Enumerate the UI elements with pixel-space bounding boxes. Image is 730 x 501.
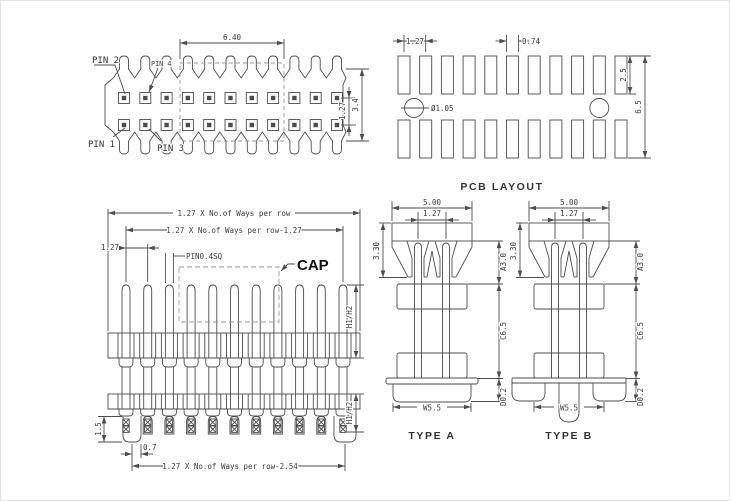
dim-arrow (529, 206, 536, 211)
pad-center (250, 96, 254, 100)
dim-arrow (518, 271, 523, 278)
type-a-view (379, 201, 503, 412)
pad-center (122, 96, 126, 100)
dim-body-width-label: 3.4 (351, 98, 360, 112)
cap-slope (529, 247, 545, 277)
standoff-foot (162, 409, 176, 416)
dim-arrow (126, 228, 133, 233)
dim-arrow (446, 218, 453, 223)
pcb-pad (593, 56, 605, 94)
cap-body (392, 223, 472, 241)
standoff-foot (184, 358, 198, 367)
cap-outline-dashed (180, 63, 284, 141)
front-dim-bottom-label: 1.27 X No.of Ways per row-2.54 (162, 462, 298, 471)
drawing-canvas: PIN 2 PIN 1 PIN 3 PIN 4 6.40 1.27 3.4 1.… (1, 1, 730, 501)
pin-upper (252, 285, 260, 333)
cap-funnel (407, 241, 412, 258)
pcb-pad (572, 120, 584, 158)
pcb-pad (528, 56, 540, 94)
dim-arrow (634, 284, 639, 291)
dim-arrow (277, 41, 284, 46)
cap-body (529, 223, 609, 241)
cap-slope (593, 247, 609, 277)
dim-arrow (338, 464, 345, 469)
pad-center (228, 123, 232, 127)
dim-row-pitch-label: 1.27 (338, 102, 347, 120)
standoff-foot (271, 409, 285, 416)
pin1-label: PIN 1 (88, 140, 115, 150)
base-wing (593, 383, 626, 401)
standoff-foot (119, 409, 133, 416)
dim-arrow (643, 56, 648, 63)
dim-arrow (353, 211, 360, 216)
pad-center (250, 123, 254, 127)
front-dim-pitch-label: 1.27 (101, 243, 119, 252)
dim-arrow (497, 284, 502, 291)
pad-center (143, 123, 147, 127)
dim-arrow (108, 211, 115, 216)
front-dim-offset-label: 0.7 (143, 443, 157, 452)
top-view (94, 39, 369, 154)
typeb-dim-a-label: A3.0 (636, 252, 645, 271)
front-dim-h-lower-label: H1/H2 (345, 402, 354, 425)
typeb-dim-d-label: D0.2 (636, 388, 645, 406)
cap-funnel (561, 241, 566, 258)
dim-arrow (497, 241, 502, 248)
pcb-pad (441, 56, 453, 94)
mount-hole (590, 99, 609, 118)
pcb-dim-pad-height-label: 2.5 (619, 68, 628, 82)
dim-arrow (465, 206, 472, 211)
base-boat (393, 384, 471, 402)
typea-dim-width-label: 5.00 (423, 198, 442, 207)
pin-upper (274, 285, 282, 333)
pad-center (186, 123, 190, 127)
pcb-pad (441, 120, 453, 158)
pin-upper (317, 285, 325, 333)
insulator-upper (108, 333, 360, 358)
pin-upper (165, 285, 173, 333)
front-dim-pin-label: PIN0.4SQ (186, 252, 223, 261)
pad-center (314, 123, 318, 127)
standoff-foot (206, 358, 220, 367)
typeb-dim-width-label: 5.00 (560, 198, 579, 207)
standoff-foot (184, 409, 198, 416)
dim-arrow (634, 277, 639, 284)
dim-arrow (393, 405, 400, 410)
pcb-pad (398, 56, 410, 94)
typeb-dim-pitch-label: 1.27 (560, 209, 578, 218)
pcb-pad (485, 120, 497, 158)
typea-dim-d-label: D0.2 (499, 388, 508, 406)
pcb-pad (550, 120, 562, 158)
pcb-pad (463, 56, 475, 94)
front-dim-total-label: 1.27 X No.of Ways per row (178, 209, 291, 218)
pad-center (164, 123, 168, 127)
collar-lower (397, 353, 467, 378)
pcb-pad (420, 120, 432, 158)
pin-upper (122, 285, 130, 333)
pcb-dim-span-label: 6.5 (634, 100, 643, 114)
text-layer: PIN 2 PIN 1 PIN 3 PIN 4 6.40 1.27 3.4 1.… (88, 33, 645, 471)
dim-arrow (634, 372, 639, 379)
standoff-foot (162, 358, 176, 367)
typea-dim-cap-height-label: 3.30 (372, 241, 381, 260)
pcb-pad (398, 120, 410, 158)
dim-arrow (392, 206, 399, 211)
cap-slope (456, 247, 472, 277)
smt-base-plate (512, 378, 626, 383)
dim-arrow (354, 351, 359, 358)
pcb-dim-pad-width-label: 0.74 (522, 37, 541, 46)
dim-arrow (634, 379, 639, 386)
pcb-pad (572, 56, 584, 94)
dim-arrow (336, 228, 343, 233)
dim-arrow (119, 246, 126, 251)
dim-arrow (125, 452, 132, 457)
dim-arrow (602, 206, 609, 211)
pad-center (228, 96, 232, 100)
front-view (98, 209, 364, 471)
cap-peak (569, 251, 574, 277)
dim-arrow (147, 85, 154, 93)
standoff-foot (293, 409, 307, 416)
locating-peg (559, 383, 579, 422)
header-body-outline (105, 56, 346, 154)
dim-arrow (583, 218, 590, 223)
cap-funnel (424, 241, 429, 258)
dim-arrow (426, 39, 433, 44)
pcb-pad (420, 56, 432, 94)
standoff-foot (249, 358, 263, 367)
pad-center (207, 123, 211, 127)
dim-arrow (497, 379, 502, 386)
pin2-label: PIN 2 (92, 56, 119, 66)
dim-arrow (548, 218, 555, 223)
cap-outline-dashed (179, 267, 279, 322)
pcb-pad (463, 120, 475, 158)
pcb-pad (615, 120, 627, 158)
cap-peak (432, 251, 437, 277)
front-dim-h-upper-label: H1/H2 (345, 306, 354, 329)
pcb-layout-title: PCB LAYOUT (460, 181, 543, 193)
cap-funnel (572, 241, 577, 258)
base-wing (512, 383, 545, 401)
cap-slope (392, 247, 408, 277)
pcb-pad (528, 120, 540, 158)
pin2-leader (94, 65, 125, 94)
dim-arrow (464, 405, 471, 410)
pcb-pad (593, 120, 605, 158)
typeb-dim-c-label: C6.5 (636, 322, 645, 340)
typea-dim-pitch-label: 1.27 (423, 209, 441, 218)
pad-center (143, 96, 147, 100)
cap-funnel (544, 241, 549, 258)
dim-arrow (500, 39, 507, 44)
standoff-foot (141, 358, 155, 367)
typea-dim-c-label: C6.5 (499, 322, 508, 340)
standoff-foot (314, 358, 328, 367)
dim-arrow (360, 134, 365, 141)
front-dim-span-label: 1.27 X No.of Ways per row-1.27 (166, 226, 301, 235)
standoff-foot (336, 358, 350, 367)
dim-arrow (397, 39, 404, 44)
front-dim-peg-label: 1.5 (94, 422, 103, 436)
dim-arrow (634, 241, 639, 248)
pin-upper (296, 285, 304, 333)
typea-dim-a-label: A3.0 (499, 252, 508, 271)
insulator-lower (108, 394, 360, 409)
standoff-foot (249, 409, 263, 416)
dim-arrow (597, 405, 604, 410)
dim-arrow (354, 285, 359, 292)
dim-arrow (354, 394, 359, 401)
dim-arrow (347, 125, 352, 132)
pcb-layout-view (393, 35, 651, 158)
standoff-foot (119, 358, 133, 367)
typeb-dim-w-label: W5.5 (560, 404, 578, 413)
pad-center (271, 123, 275, 127)
standoff-foot (206, 409, 220, 416)
standoff-foot (293, 358, 307, 367)
pin (552, 243, 559, 378)
dim-arrow (497, 372, 502, 379)
pad-center (164, 96, 168, 100)
dim-arrow (141, 452, 148, 457)
cap-peak (427, 251, 432, 277)
dim-arrow (497, 277, 502, 284)
standoff-foot (271, 358, 285, 367)
pad-center (207, 96, 211, 100)
dim-arrow (347, 91, 352, 98)
dim-arrow (360, 69, 365, 76)
standoff-foot (228, 358, 242, 367)
dim-arrow (354, 425, 359, 432)
dim-arrow (381, 271, 386, 278)
dim-cap-width-label: 6.40 (223, 33, 242, 42)
pin (580, 243, 587, 378)
typea-title: TYPE A (408, 430, 455, 442)
dim-arrow (643, 151, 648, 158)
dim-arrow (534, 405, 541, 410)
standoff-foot (228, 409, 242, 416)
collar-upper (397, 284, 467, 309)
dim-arrow (381, 223, 386, 230)
pad-center (122, 123, 126, 127)
pin3-label: PIN 3 (157, 144, 184, 154)
pcb-dim-hole-label: Ø1.05 (431, 104, 454, 113)
cap-peak (564, 251, 569, 277)
cap-funnel (452, 241, 457, 258)
pin1-leader (113, 128, 125, 137)
pad-center (292, 123, 296, 127)
pad-center (186, 96, 190, 100)
pad-center (335, 123, 339, 127)
pcb-pad (550, 56, 562, 94)
dim-arrow (628, 87, 633, 94)
dim-arrow (148, 246, 155, 251)
typeb-title: TYPE B (545, 430, 593, 442)
pad-center (292, 96, 296, 100)
cap-funnel (435, 241, 440, 258)
pad-center (314, 96, 318, 100)
smt-base-plate (386, 378, 478, 384)
typeb-dim-cap-height-label: 3.30 (509, 241, 518, 260)
pin-upper (231, 285, 239, 333)
type-b-view (512, 201, 640, 422)
pcb-pad (507, 56, 519, 94)
cap-label: CAP (297, 257, 329, 274)
pcb-dim-pitch-label: 1.27 (406, 37, 424, 46)
pcb-pad (507, 120, 519, 158)
collar-upper (534, 284, 604, 309)
cap-funnel (589, 241, 594, 258)
pcb-pad (485, 56, 497, 94)
pad-center (271, 96, 275, 100)
dim-arrow (628, 56, 633, 63)
standoff-foot (314, 409, 328, 416)
pin (415, 243, 422, 378)
dim-arrow (411, 218, 418, 223)
pin-upper (209, 285, 217, 333)
standoff-foot (141, 409, 155, 416)
dim-arrow (132, 464, 139, 469)
dim-arrow (518, 223, 523, 230)
typea-dim-w-label: W5.5 (423, 404, 441, 413)
pin (443, 243, 450, 378)
pin-upper (144, 285, 152, 333)
dim-arrow (180, 41, 187, 46)
technical-drawing-sheet: PIN 2 PIN 1 PIN 3 PIN 4 6.40 1.27 3.4 1.… (0, 0, 730, 501)
collar-lower (534, 353, 604, 378)
pin4-label: PIN 4 (151, 60, 171, 68)
pin-upper (187, 285, 195, 333)
pad-center (335, 96, 339, 100)
